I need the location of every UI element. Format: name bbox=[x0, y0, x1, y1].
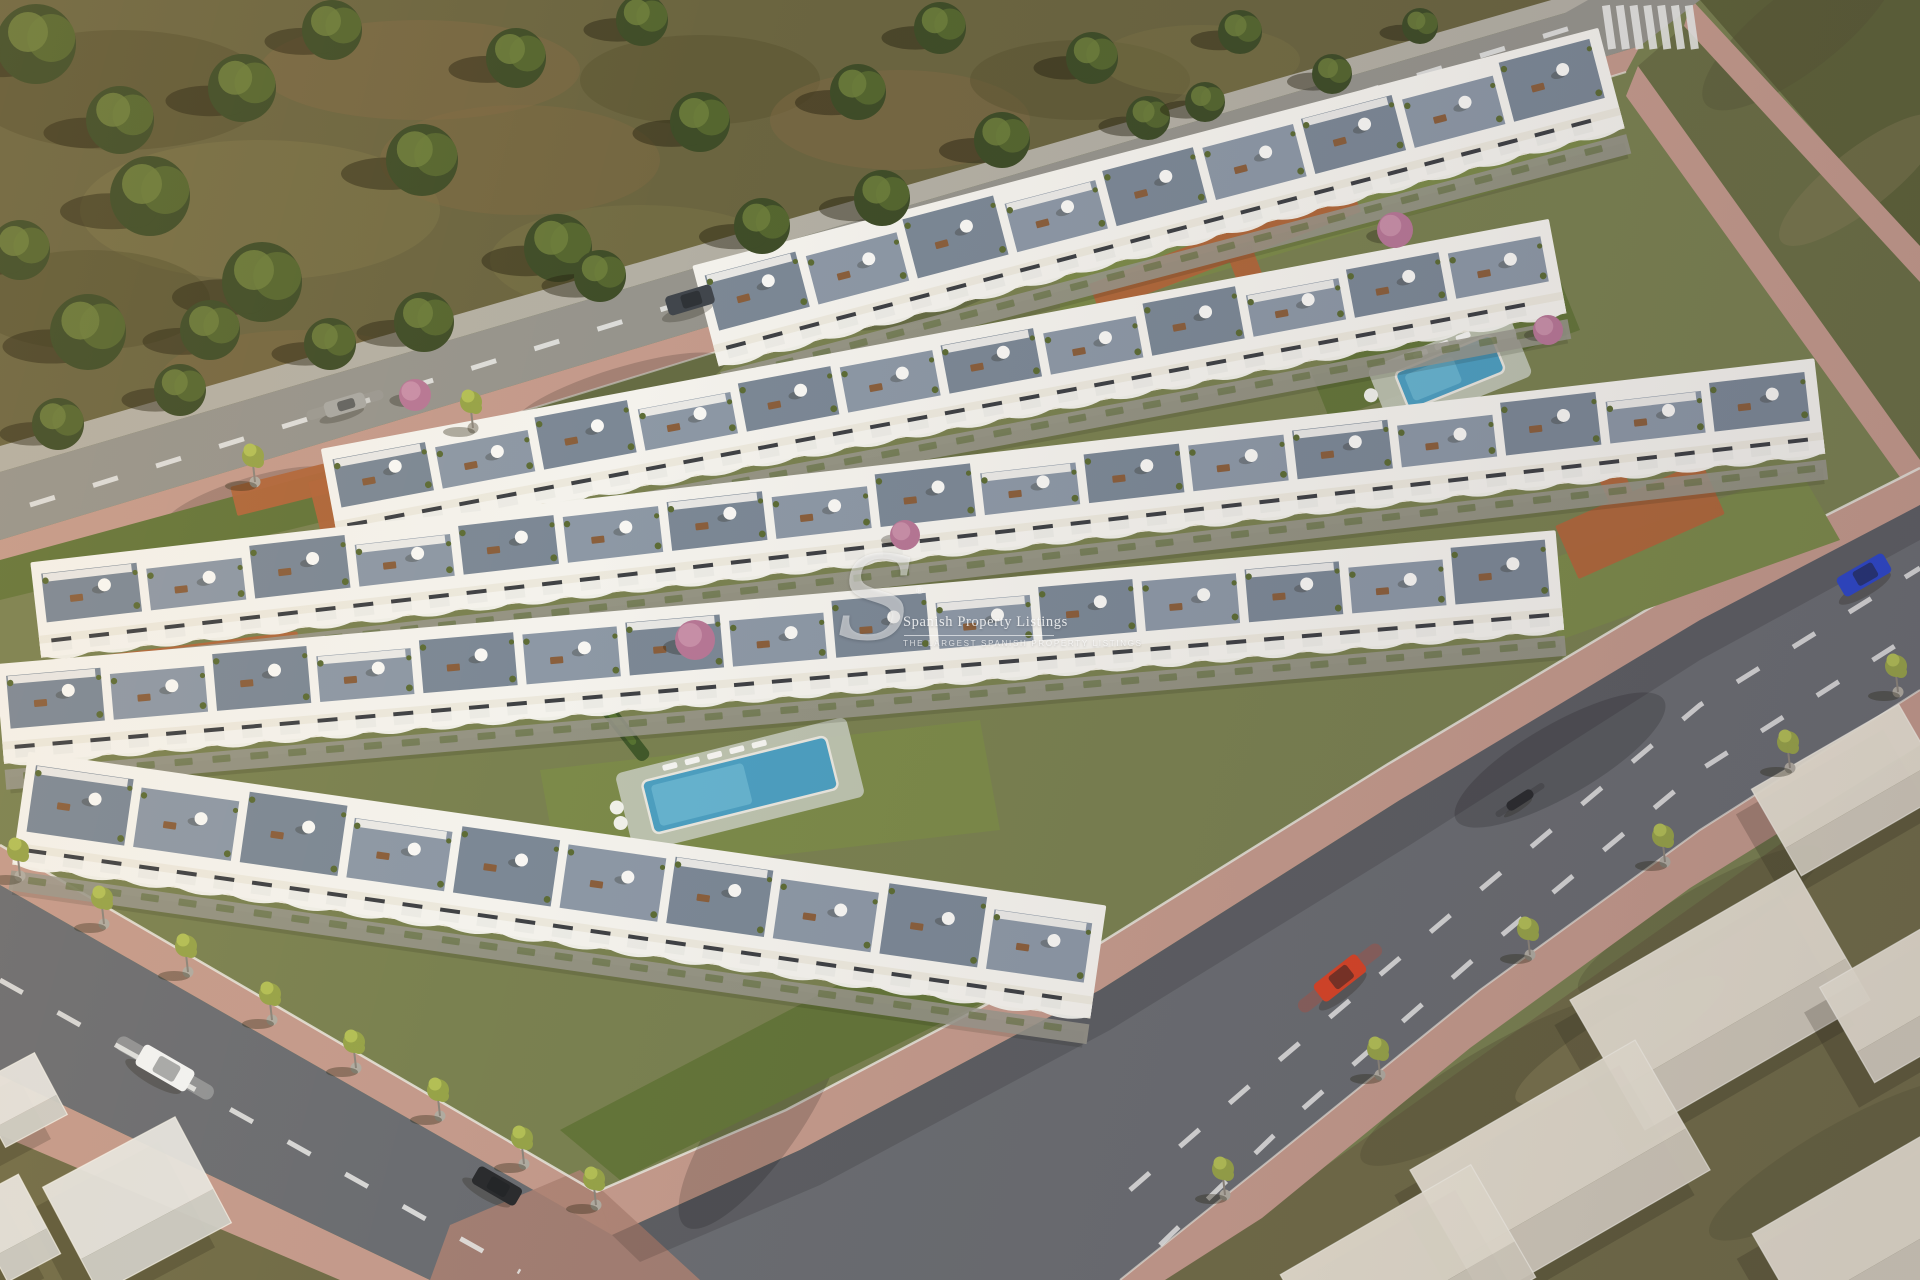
development-aerial-view bbox=[0, 0, 1920, 1280]
aerial-render-stage: S ® Spanish Property Listings THE LARGES… bbox=[0, 0, 1920, 1280]
